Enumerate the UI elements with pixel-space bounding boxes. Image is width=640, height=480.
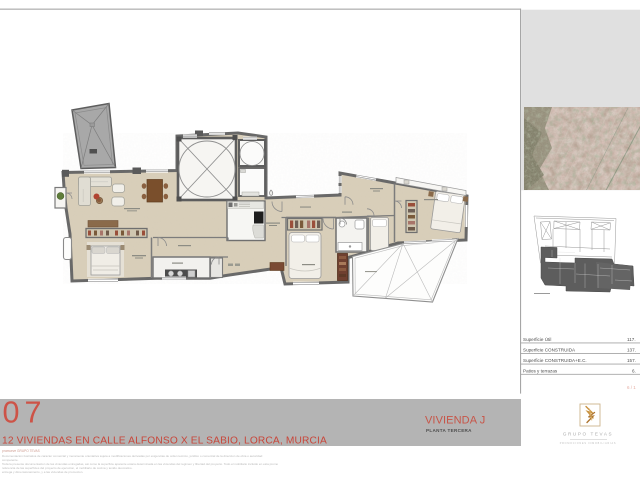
- svg-text:6.: 6.: [632, 368, 636, 373]
- svg-text:PROMOCIONES INMOBILIARIAS: PROMOCIONES INMOBILIARIAS: [560, 442, 617, 445]
- svg-text:PLANTA TERCERA: PLANTA TERCERA: [426, 428, 472, 433]
- svg-text:137.: 137.: [627, 348, 636, 353]
- svg-text:6 / 1: 6 / 1: [627, 385, 636, 390]
- svg-text:157.: 157.: [627, 358, 636, 363]
- svg-text:117.: 117.: [627, 337, 636, 342]
- svg-text:Superficie CONSTRUIDA: Superficie CONSTRUIDA: [523, 348, 576, 353]
- svg-text:Superficie Útil: Superficie Útil: [523, 336, 551, 342]
- svg-text:entrega y dimensionamiento, y: entrega y dimensionamiento, y a las vivi…: [2, 470, 83, 474]
- svg-text:07: 07: [3, 396, 47, 430]
- svg-text:Documentacion ilustrativa de c: Documentacion ilustrativa de caracter co…: [2, 454, 263, 458]
- svg-text:promueve GRUPO TEVAS: promueve GRUPO TEVAS: [2, 449, 40, 453]
- svg-text:Superficie CONSTRUIDA+E.C.: Superficie CONSTRUIDA+E.C.: [523, 358, 587, 363]
- svg-text:12 VIVIENDAS EN CALLE ALFONSO: 12 VIVIENDAS EN CALLE ALFONSO X EL SABIO…: [2, 436, 327, 447]
- svg-text:VIVIENDA J: VIVIENDA J: [425, 415, 485, 427]
- svg-text:Patios y terrazas: Patios y terrazas: [523, 368, 558, 373]
- svg-text:GRUPO TEVAS: GRUPO TEVAS: [563, 432, 613, 437]
